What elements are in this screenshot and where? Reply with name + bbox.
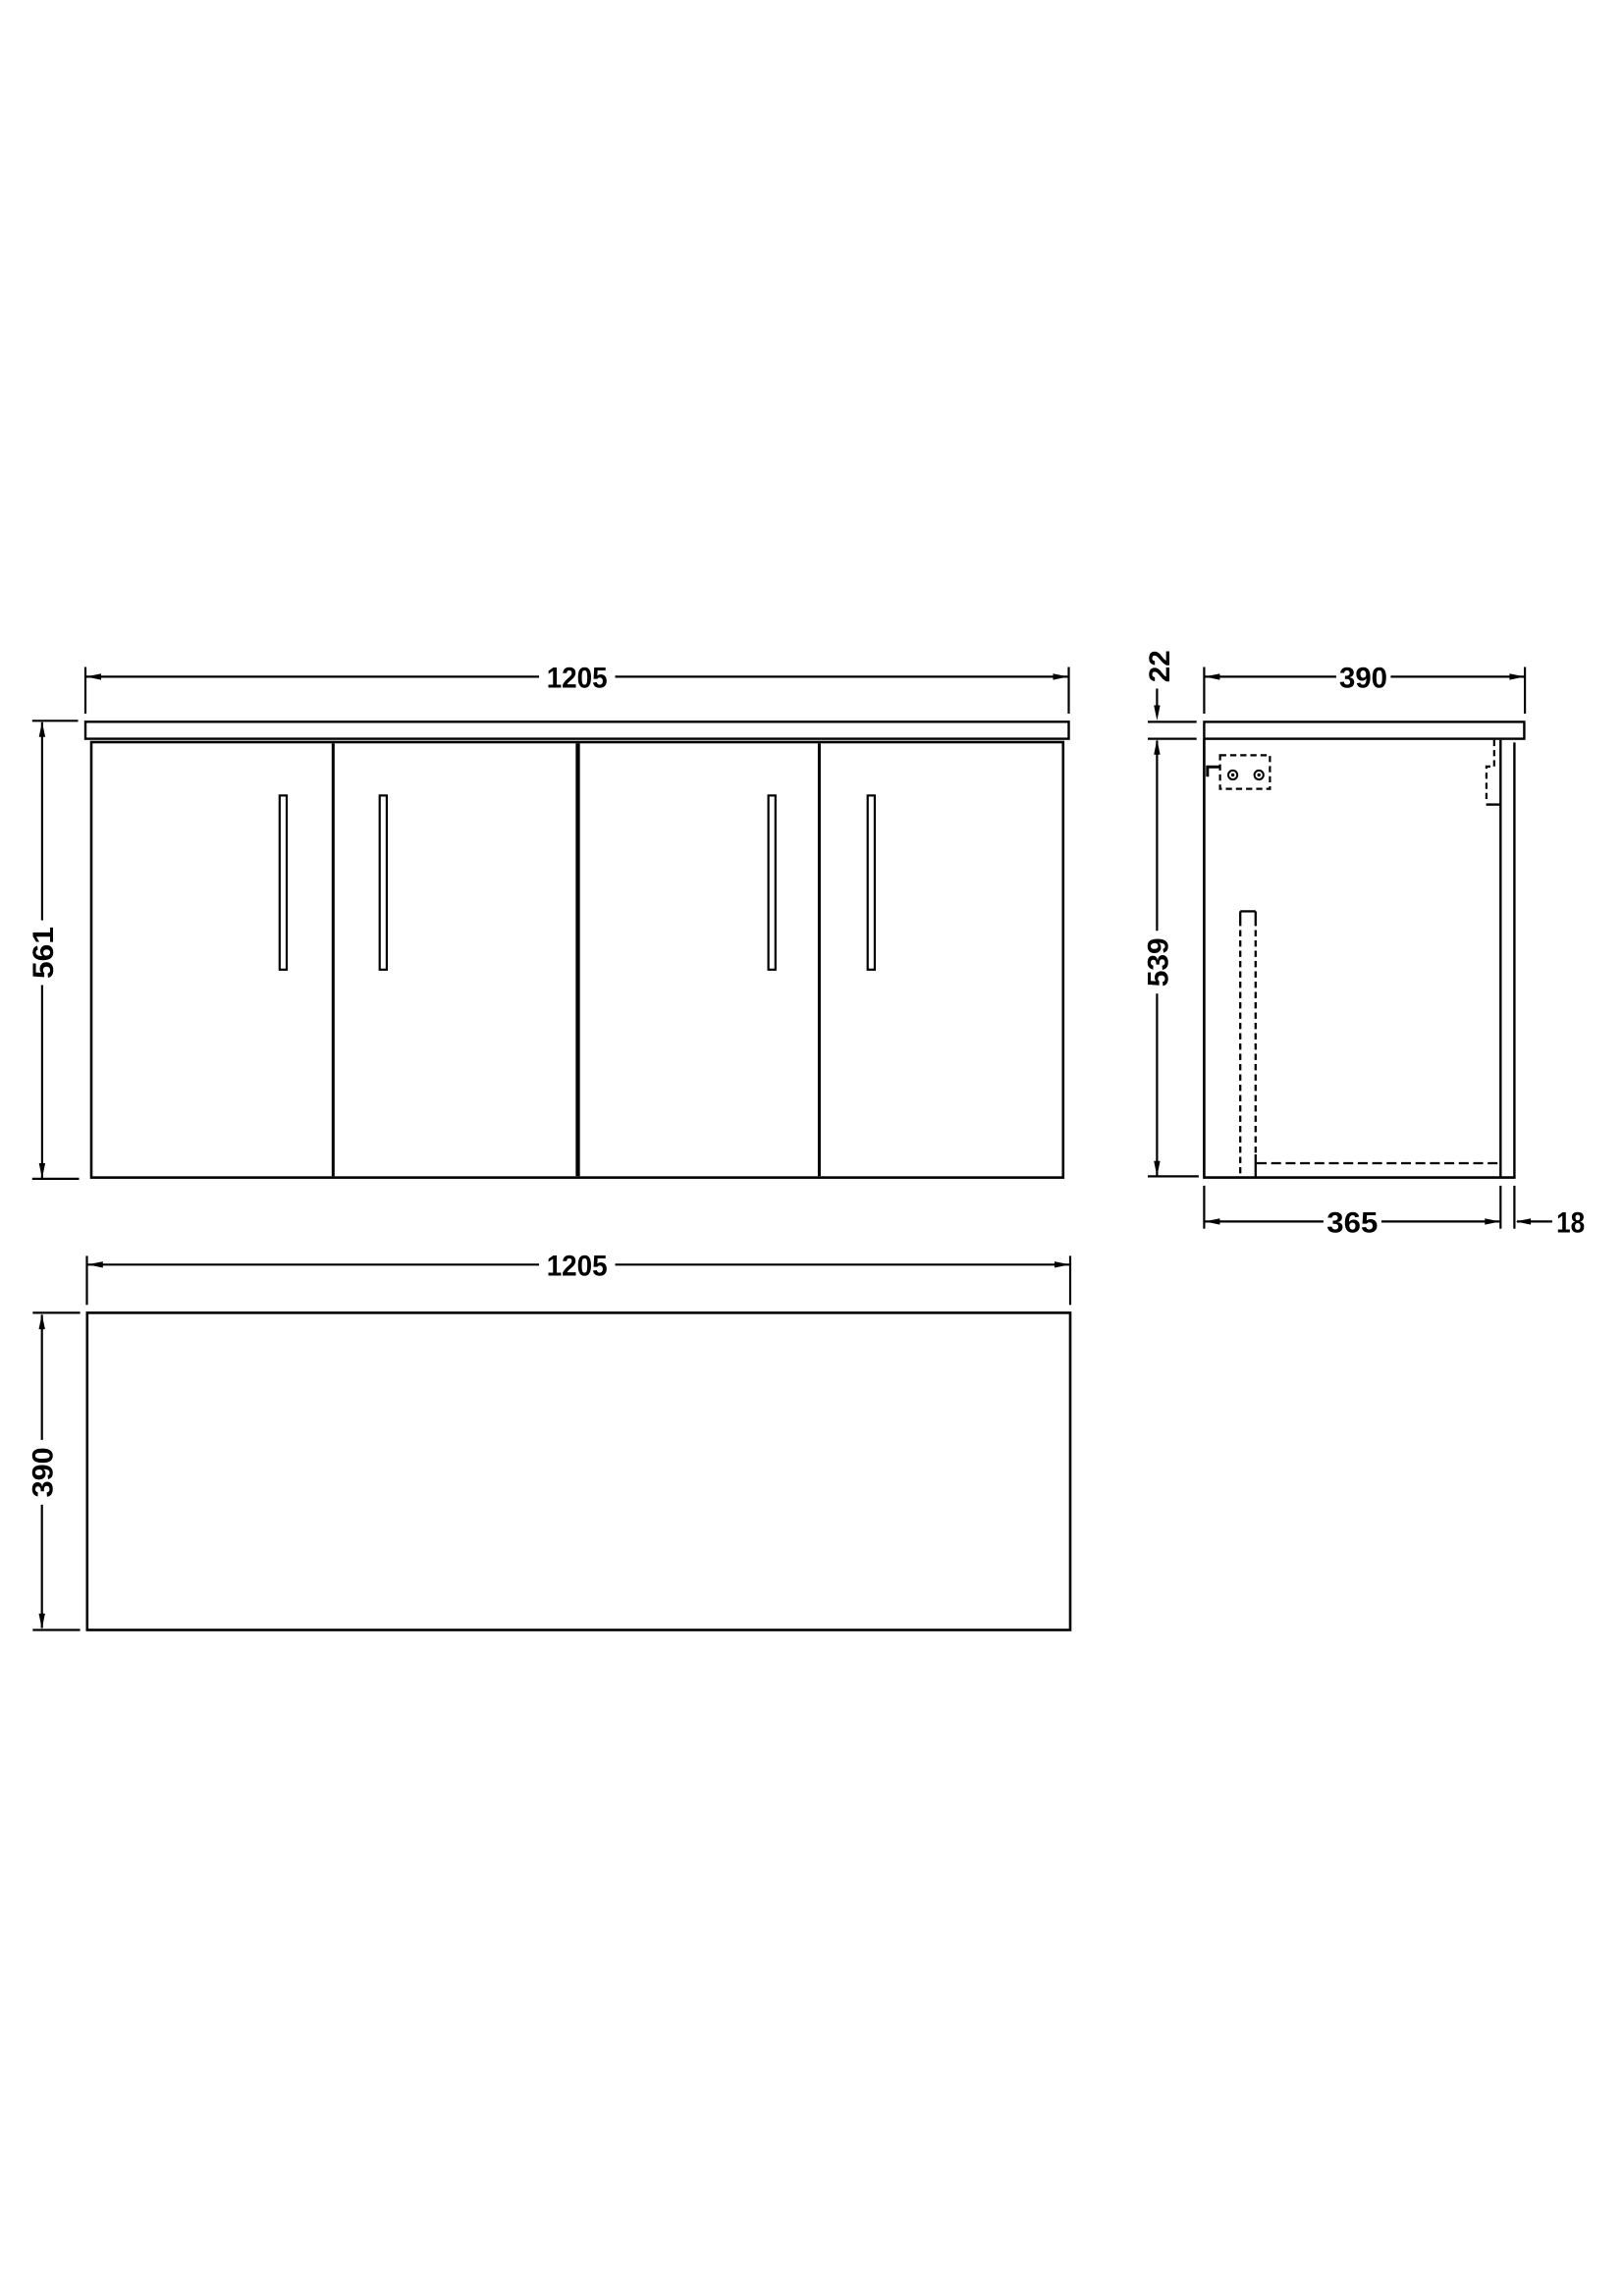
svg-text:18: 18 — [1556, 1206, 1585, 1239]
svg-text:390: 390 — [1339, 662, 1387, 694]
svg-text:365: 365 — [1326, 1206, 1378, 1239]
svg-text:1205: 1205 — [547, 1250, 608, 1282]
svg-text:1205: 1205 — [547, 662, 608, 694]
svg-text:539: 539 — [1142, 937, 1174, 987]
svg-text:561: 561 — [27, 927, 60, 979]
svg-text:22: 22 — [1144, 650, 1176, 682]
svg-text:390: 390 — [27, 1447, 60, 1497]
